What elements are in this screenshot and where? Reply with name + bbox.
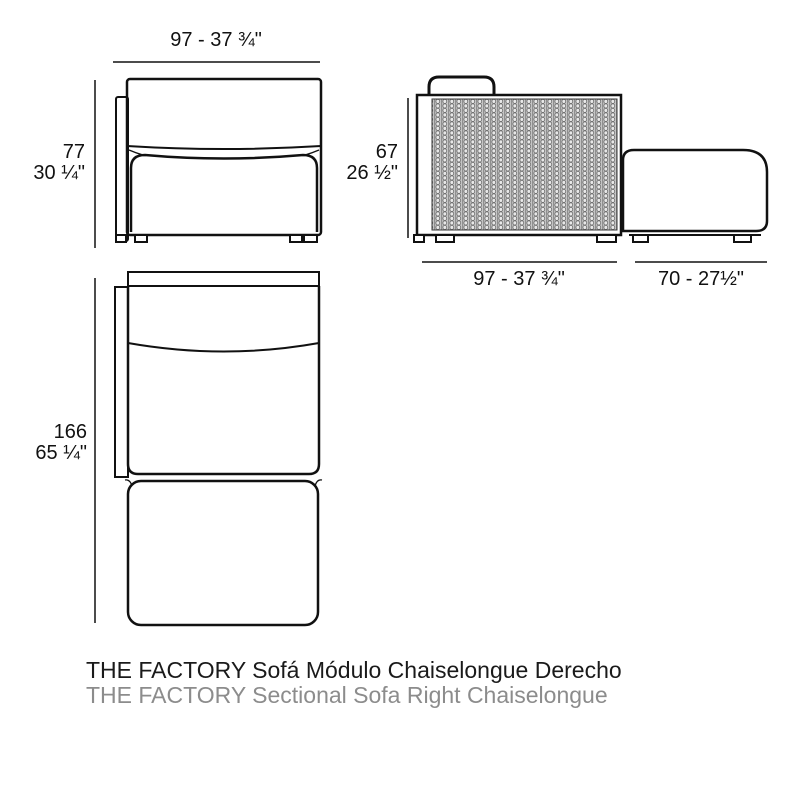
side-height-cm: 67 <box>306 142 398 163</box>
side-foot <box>734 235 751 242</box>
top-seat-outline <box>128 286 319 474</box>
front-height-label: 77 30 ¼" <box>0 142 85 184</box>
side-back-texture <box>432 99 617 230</box>
front-width-label: 97 - 37 ¾" <box>170 30 262 51</box>
front-foot <box>135 235 147 242</box>
front-height-cm: 77 <box>0 142 85 163</box>
product-title-english: THE FACTORY Sectional Sofa Right Chaisel… <box>86 683 622 708</box>
top-depth-cm: 166 <box>0 422 87 443</box>
side-handle <box>429 77 494 95</box>
side-foot <box>633 235 648 242</box>
side-foot <box>597 235 616 242</box>
side-chaise-width-label: 70 - 27½" <box>658 269 744 290</box>
top-back-strip <box>128 272 319 286</box>
front-foot <box>116 235 126 242</box>
front-foot <box>304 235 317 242</box>
side-height-in: 26 ½" <box>306 163 398 184</box>
top-view <box>95 272 322 625</box>
top-depth-label: 166 65 ¼" <box>0 422 87 464</box>
front-view <box>95 62 321 248</box>
front-seat-divider-line <box>127 146 321 149</box>
front-seat-corner-seam-left <box>129 150 143 155</box>
side-module-width-label: 97 - 37 ¾" <box>473 269 565 290</box>
top-depth-in: 65 ¼" <box>0 443 87 464</box>
side-view <box>408 77 767 262</box>
side-chaise-ottoman <box>623 150 767 231</box>
front-seat-cushion <box>131 155 317 232</box>
side-height-label: 67 26 ½" <box>306 142 398 184</box>
side-foot <box>414 235 424 242</box>
top-arm-panel <box>115 287 128 477</box>
top-chaise-ottoman <box>128 481 318 625</box>
product-title-spanish: THE FACTORY Sofá Módulo Chaiselongue Der… <box>86 658 622 683</box>
top-backrest-cushion-curve <box>128 343 319 352</box>
technical-drawing-page: 97 - 37 ¾" 77 30 ¼" 67 26 ½" 97 - 37 ¾" … <box>0 0 800 800</box>
front-foot <box>290 235 302 242</box>
product-title: THE FACTORY Sofá Módulo Chaiselongue Der… <box>86 658 622 708</box>
side-foot <box>436 235 454 242</box>
front-height-in: 30 ¼" <box>0 163 85 184</box>
